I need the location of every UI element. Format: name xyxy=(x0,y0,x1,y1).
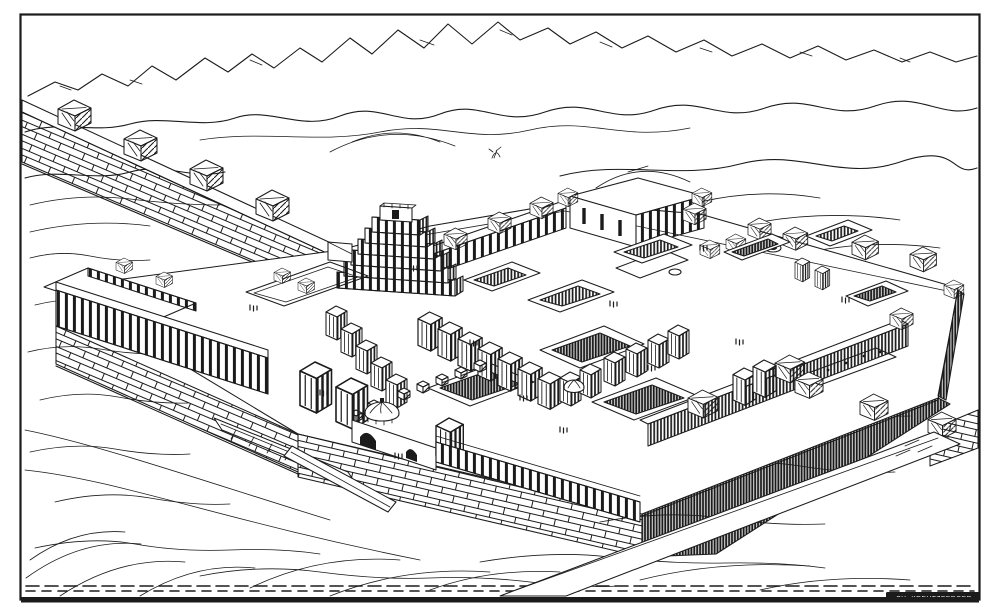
wall-tower xyxy=(124,130,157,161)
engraving-canvas: CH. KREUTZBERGER xyxy=(0,0,1000,611)
wall-tower xyxy=(58,100,91,131)
engraving-figure: CH. KREUTZBERGER xyxy=(0,0,1000,611)
wall-tower xyxy=(190,160,223,191)
gate-tower xyxy=(753,360,776,397)
ziggurat-shrine xyxy=(380,203,416,222)
wall-tower xyxy=(256,190,289,221)
